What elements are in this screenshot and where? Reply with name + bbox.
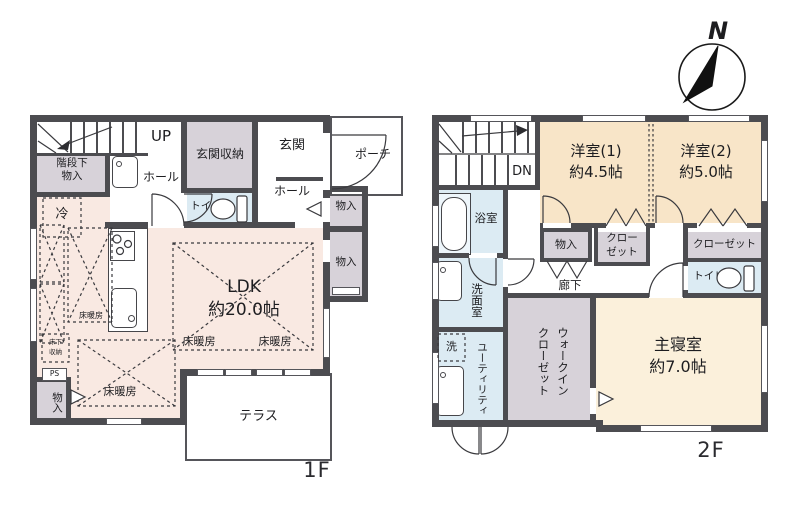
wall: [432, 253, 469, 258]
washer-label: 洗: [438, 340, 465, 354]
window: [470, 115, 532, 122]
utility-label: ユーティリティ: [472, 336, 488, 422]
window: [688, 115, 750, 122]
door-opening: [683, 266, 688, 290]
window: [640, 425, 712, 432]
window: [761, 325, 768, 393]
door-opening: [649, 293, 683, 298]
master-bedroom-label: 主寝室 約7.0帖: [608, 334, 748, 379]
bathtub-inner: [441, 197, 467, 251]
corridor-label: 廊下: [548, 278, 592, 293]
wall: [503, 287, 508, 420]
stairs-2f: [462, 122, 535, 153]
window: [432, 262, 439, 300]
door-opening: [590, 388, 596, 414]
window: [582, 115, 646, 122]
stairs-down-label: DN: [505, 164, 539, 181]
window: [761, 140, 768, 202]
wall: [688, 258, 761, 262]
bathroom-label: 浴室: [468, 211, 504, 226]
toilet-2f-label: トイレ: [690, 270, 728, 284]
door-opening: [606, 223, 646, 228]
wall: [432, 185, 540, 190]
compass-north-label: N: [700, 16, 736, 47]
closet-2-label: クローゼット: [688, 238, 761, 252]
door-opening: [655, 223, 683, 228]
closet-1-label: クロー ゼット: [596, 231, 648, 259]
door-opening: [543, 223, 571, 228]
wall: [497, 253, 508, 258]
storage-2f-label: 物入: [540, 238, 592, 252]
basin-dot: [440, 267, 446, 273]
wall: [540, 258, 592, 262]
wall: [540, 228, 592, 232]
floor2-label: 2F: [686, 437, 736, 464]
wall: [432, 420, 603, 427]
basin-dot: [440, 372, 446, 378]
stairs-2f: [455, 155, 512, 186]
door-opening: [697, 223, 747, 228]
western-room-1-label: 洋室(1) 約4.5帖: [546, 141, 646, 183]
walk-in-closet-label: ウォークイン クローゼット: [522, 304, 572, 418]
floor-plan-canvas: UP 階段下 物入 冷 ホール トイレ 玄関収納 玄関 ポーチ ホール 物入 物…: [0, 0, 800, 519]
washroom-label: 洗面室: [468, 270, 484, 330]
floor2-plan: DN 浴室 洋室(1) 約4.5帖 洋室(2) 約5.0帖 物入 クロー ゼット…: [0, 0, 800, 519]
wall: [503, 293, 596, 298]
window: [432, 352, 439, 404]
wall: [594, 262, 650, 266]
western-room-2-label: 洋室(2) 約5.0帖: [654, 141, 758, 183]
window: [432, 205, 439, 247]
